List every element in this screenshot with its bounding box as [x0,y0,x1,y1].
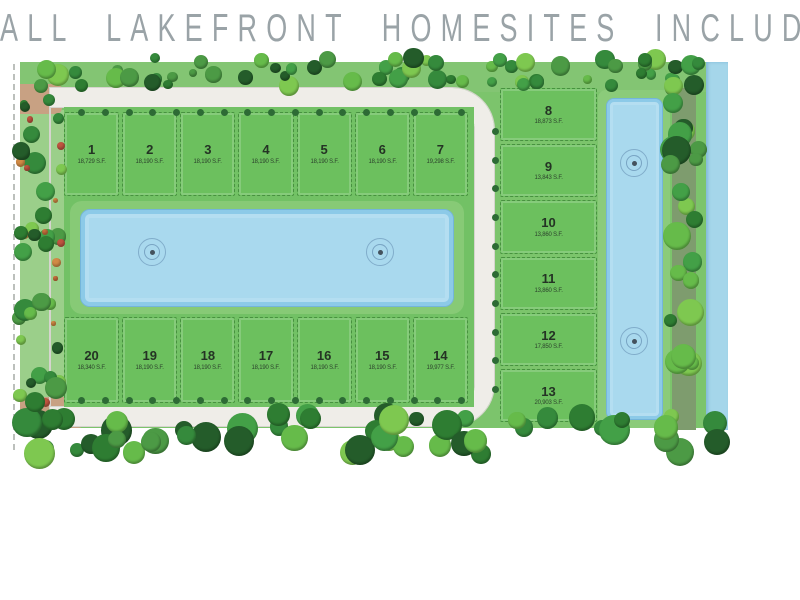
lot-sqft: 18,190 S.F. [252,364,280,370]
street-tree-icon [387,109,394,116]
lot: 6 18,190 S.F. [355,112,410,196]
lot: 12 17,850 S.F. [500,313,597,366]
tree-icon [27,116,33,122]
lot-sqft: 19,977 S.F. [426,364,454,370]
lot-number: 11 [542,272,556,286]
lot: 20 18,340 S.F. [64,317,119,403]
lot: 16 18,190 S.F. [297,317,352,403]
tree-icon [654,415,678,439]
lot-sqft: 18,190 S.F. [310,364,338,370]
page-title: ALL LAKEFRONT HOMESITES INCLUDED [0,6,800,51]
lot-number: 8 [545,104,552,118]
lot: 7 19,298 S.F. [413,112,468,196]
lot: 10 13,860 S.F. [500,200,597,253]
lot: 15 18,190 S.F. [355,317,410,403]
central-lake [80,209,454,307]
tree-icon [53,113,64,124]
lot-number: 12 [541,329,555,343]
lot-number: 1 [88,143,95,157]
tree-icon [428,70,447,89]
lot: 2 18,190 S.F. [122,112,177,196]
lot-sqft: 13,860 S.F. [534,287,562,293]
lot: 9 13,843 S.F. [500,144,597,197]
tree-icon [224,426,254,456]
lot-sqft: 17,850 S.F. [534,343,562,349]
lot-number: 19 [142,349,156,363]
tree-icon [69,66,82,79]
tree-icon [267,403,289,425]
lot-sqft: 19,298 S.F. [426,158,454,164]
tree-icon [409,412,423,426]
street-tree-icon [197,109,204,116]
tree-icon [372,72,386,86]
tree-icon [456,75,469,88]
street-tree-icon [411,109,418,116]
tree-icon [141,432,161,452]
lot: 4 18,190 S.F. [238,112,293,196]
lot-number: 20 [84,349,98,363]
lot-sqft: 18,729 S.F. [77,158,105,164]
street-tree-icon [458,397,465,404]
tree-icon [661,155,680,174]
tree-icon [281,425,307,451]
street-tree-icon [268,397,275,404]
street-tree-icon [316,397,323,404]
lot-number: 6 [379,143,386,157]
lot-sqft: 18,190 S.F. [136,158,164,164]
street-tree-icon [492,386,499,393]
street-tree-icon [387,397,394,404]
lot-number: 17 [259,349,273,363]
tree-icon [704,429,730,455]
canal [706,62,728,430]
street-tree-icon [492,128,499,135]
tree-icon [189,69,197,77]
street-tree-icon [126,397,133,404]
tree-icon [254,53,269,68]
tree-icon [53,276,57,280]
street-tree-icon [197,397,204,404]
tree-icon [191,422,221,452]
lot: 1 18,729 S.F. [64,112,119,196]
lot-sqft: 18,190 S.F. [194,364,222,370]
tree-icon [537,407,558,428]
street-tree-icon [292,397,299,404]
tree-icon [270,63,280,73]
tree-icon [32,293,51,312]
fountain-icon [620,149,648,177]
street-tree-icon [102,397,109,404]
tree-icon [53,198,58,203]
street-tree-icon [268,109,275,116]
tree-icon [163,80,173,90]
tree-icon [14,226,28,240]
tree-icon [108,431,125,448]
lot-number: 4 [262,143,269,157]
street-tree-icon [411,397,418,404]
lot-number: 5 [321,143,328,157]
lot-sqft: 18,190 S.F. [252,158,280,164]
street-tree-icon [492,329,499,336]
lot-number: 10 [541,216,555,230]
tree-icon [663,222,691,250]
street-tree-icon [458,109,465,116]
lot-sqft: 13,843 S.F. [534,175,562,181]
tree-icon [57,239,65,247]
tree-icon [177,426,195,444]
lot: 18 18,190 S.F. [180,317,235,403]
tree-icon [194,55,208,69]
lot-sqft: 13,860 S.F. [534,231,562,237]
lot-number: 13 [541,385,555,399]
tree-icon [683,272,700,289]
tree-icon [569,404,595,430]
tree-icon [428,55,444,71]
tree-icon [120,68,139,87]
street-tree-icon [292,109,299,116]
street-tree-icon [316,109,323,116]
lot-number: 9 [545,160,552,174]
street-tree-icon [363,109,370,116]
tree-icon [238,70,253,85]
tree-icon [286,63,298,75]
tree-icon [16,335,26,345]
tree-icon [51,321,55,325]
street-tree-icon [78,397,85,404]
tree-icon [508,412,526,430]
tree-icon [24,438,55,469]
street-tree-icon [78,109,85,116]
tree-icon [583,75,592,84]
tree-icon [20,102,30,112]
lot-number: 16 [317,349,331,363]
lot: 8 18,873 S.F. [500,88,597,141]
tree-icon [28,229,41,242]
tree-icon [646,69,656,79]
lot-row-bottom: 20 18,340 S.F. 19 18,190 S.F. 18 18,190 … [64,317,468,403]
lot-sqft: 18,190 S.F. [368,364,396,370]
lot-number: 15 [375,349,389,363]
lot-column-right: 8 18,873 S.F. 9 13,843 S.F. 10 13,860 S.… [500,88,597,422]
street-tree-icon [492,214,499,221]
street-tree-icon [102,109,109,116]
lot: 14 19,977 S.F. [413,317,468,403]
tree-icon [551,56,571,76]
tree-icon [35,207,52,224]
fountain-icon [138,238,166,266]
tree-icon [379,405,409,435]
lot-sqft: 18,190 S.F. [368,158,396,164]
street-tree-icon [221,109,228,116]
lot: 17 18,190 S.F. [238,317,293,403]
lot-sqft: 18,873 S.F. [534,119,562,125]
street-tree-icon [173,397,180,404]
tree-icon [52,342,63,353]
tree-icon [25,392,45,412]
lot-number: 2 [146,143,153,157]
lot-number: 7 [437,143,444,157]
lot-sqft: 18,190 S.F. [194,158,222,164]
lot-sqft: 20,903 S.F. [534,400,562,406]
tree-icon [531,75,544,88]
lot-row-top: 1 18,729 S.F. 2 18,190 S.F. 3 18,190 S.F… [64,112,468,196]
tree-icon [52,258,61,267]
street-tree-icon [492,157,499,164]
fountain-icon [620,327,648,355]
lot-sqft: 18,190 S.F. [136,364,164,370]
street-tree-icon [126,109,133,116]
lot-sqft: 18,340 S.F. [77,364,105,370]
tree-icon [464,429,487,452]
tree-icon [608,59,622,73]
street-tree-icon [492,243,499,250]
tree-icon [684,75,704,95]
street-tree-icon [221,397,228,404]
tree-icon [24,165,29,170]
street-tree-icon [363,397,370,404]
lot-number: 3 [204,143,211,157]
street-tree-icon [492,300,499,307]
lot-number: 14 [433,349,447,363]
lot: 11 13,860 S.F. [500,257,597,310]
lot-sqft: 18,190 S.F. [310,158,338,164]
lot: 3 18,190 S.F. [180,112,235,196]
lot-number: 18 [201,349,215,363]
tree-icon [34,79,48,93]
tree-icon [36,182,55,201]
east-lake [606,98,663,420]
tree-icon [689,153,703,167]
tree-icon [12,408,41,437]
tree-icon [205,66,221,82]
tree-icon [493,53,507,67]
lot: 19 18,190 S.F. [122,317,177,403]
lot: 5 18,190 S.F. [297,112,352,196]
fountain-icon [366,238,394,266]
street-tree-icon [173,109,180,116]
tree-icon [403,48,423,68]
